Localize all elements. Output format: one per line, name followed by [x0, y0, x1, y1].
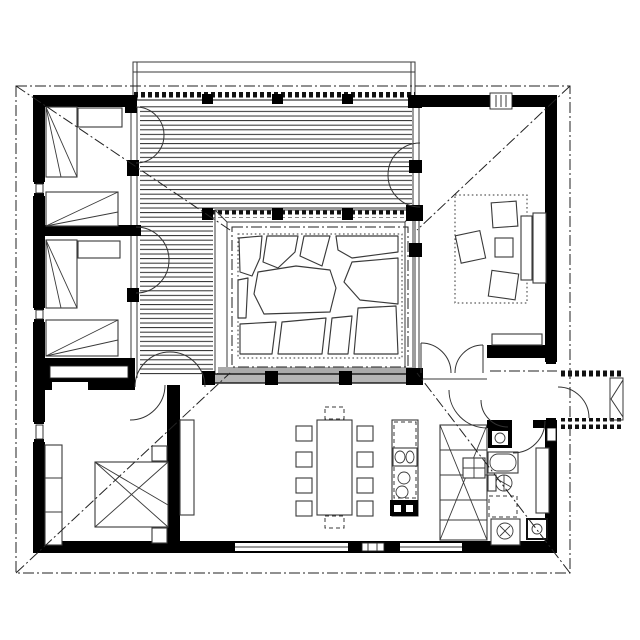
- wall-master-east: [167, 385, 180, 545]
- master-bedroom: [45, 445, 168, 545]
- patio-step-hatch: [205, 210, 418, 218]
- deck-boards-left: [140, 210, 213, 375]
- cabinet: [492, 334, 542, 345]
- window-south-1: [235, 543, 348, 551]
- door-entry-kitchen: [449, 390, 487, 428]
- window-left-1: [33, 180, 45, 197]
- corner-sink: [527, 519, 547, 539]
- stone-patio: [215, 210, 415, 375]
- bedroom-1: [46, 107, 122, 226]
- window-left-3: [33, 420, 45, 443]
- wardrobe: [45, 445, 62, 545]
- flue-symbol: [490, 93, 512, 109]
- wall-top-right: [415, 95, 557, 107]
- double-door-right: [455, 345, 483, 373]
- floor-plan-drawing: [0, 0, 640, 640]
- front-door-opening: [545, 360, 557, 441]
- living-room: [455, 195, 546, 345]
- floor-plan-canvas: [0, 0, 640, 640]
- dining-kitchen: [180, 407, 487, 540]
- counter: [180, 420, 194, 515]
- kitchen-island: [390, 420, 418, 516]
- bedroom-2: [46, 240, 120, 356]
- toilet: [488, 475, 512, 491]
- window-south-mullion: [362, 543, 384, 551]
- wall-left: [33, 95, 45, 553]
- flagstones: [238, 236, 398, 354]
- desk: [78, 108, 122, 127]
- window-left-2: [33, 306, 45, 323]
- coffee-table: [495, 238, 513, 257]
- tall-cabinets: [440, 425, 487, 540]
- great-room-north-glazing: [213, 374, 420, 383]
- porch-wall-north: [560, 368, 622, 379]
- shower: [489, 496, 517, 517]
- dining-table: [317, 420, 352, 515]
- wall-entry-north: [487, 345, 557, 358]
- sofa-back: [533, 213, 546, 283]
- nightstand: [152, 528, 167, 543]
- window-south-2: [400, 543, 462, 551]
- double-door-left: [421, 343, 451, 373]
- wall-top-left: [33, 95, 135, 107]
- bathtub: [488, 452, 518, 473]
- front-door-swing: [558, 387, 589, 418]
- armchair: [488, 270, 518, 300]
- washing-machine: [491, 519, 520, 545]
- deck-boards-top: [140, 103, 412, 210]
- desk: [78, 241, 120, 258]
- bench: [536, 448, 549, 513]
- entry-porch: [560, 368, 623, 429]
- sofa: [521, 216, 532, 280]
- armchair: [455, 231, 485, 264]
- nightstand: [152, 446, 167, 461]
- door-master: [130, 385, 165, 420]
- wall-bedroom-divider: [42, 225, 132, 236]
- armchair: [491, 201, 518, 228]
